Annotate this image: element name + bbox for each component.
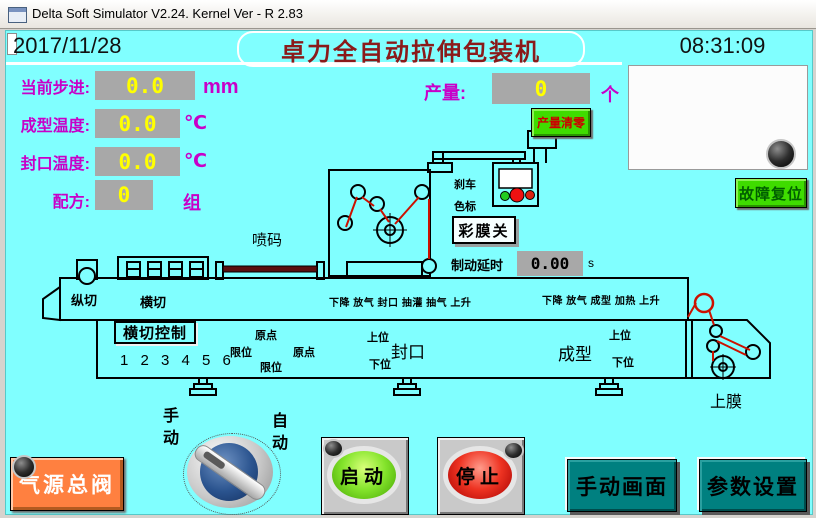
seal-temp-label: 封口温度: <box>8 150 90 174</box>
window-title: Delta Soft Simulator V2.24. Kernel Ver -… <box>32 6 303 21</box>
seal-sequence-label: 下降 放气 封口 抽灌 抽气 上升 <box>329 294 471 309</box>
alarm-ack-sphere-button[interactable] <box>766 139 796 169</box>
manual-auto-selector-knob[interactable] <box>183 433 281 515</box>
step-value: 0.0 <box>95 71 195 100</box>
step-label: 当前步进: <box>8 74 90 98</box>
air-valve-indicator <box>12 455 36 479</box>
forming-temp-unit: ℃ <box>184 112 207 135</box>
seal-temp-value: 0.0 <box>95 147 180 176</box>
form-lower-pos-label: 下位 <box>612 354 634 370</box>
start-indicator <box>323 439 344 458</box>
time-display: 08:31:09 <box>640 33 805 59</box>
recipe-label: 配方: <box>8 188 90 212</box>
seal-lower-pos-label: 下位 <box>369 356 391 372</box>
production-clear-button[interactable]: 产量清零 <box>531 108 591 137</box>
fault-reset-button[interactable]: 故障复位 <box>735 178 807 208</box>
origin-label-b: 原点 <box>293 344 315 360</box>
production-label: 产量: <box>424 79 466 105</box>
crosscut-control-button[interactable]: 横切控制 <box>114 321 196 344</box>
form-upper-pos-label: 上位 <box>609 327 631 343</box>
machine-title: 卓力全自动拉伸包装机 <box>237 31 585 67</box>
manual-label: 手动 <box>161 406 181 450</box>
auto-label: 自动 <box>270 411 290 455</box>
step-unit: mm <box>203 76 239 99</box>
manual-screen-button[interactable]: 手动画面 <box>567 459 677 512</box>
origin-label-a: 原点 <box>255 327 277 343</box>
date-display: 2017/11/28 <box>13 33 121 59</box>
color-film-toggle-button[interactable]: 彩膜关 <box>452 216 516 244</box>
inkjet-printer-label: 喷码 <box>252 229 282 250</box>
param-settings-button[interactable]: 参数设置 <box>699 459 807 512</box>
seal-upper-pos-label: 上位 <box>367 329 389 345</box>
form-sequence-label: 下降 放气 成型 加热 上升 <box>542 292 660 307</box>
brake-delay-unit: s <box>588 256 594 270</box>
brake-delay-label: 制动延时 <box>451 255 503 274</box>
seal-station-label: 封口 <box>391 338 425 363</box>
production-unit: 个 <box>601 81 619 107</box>
recipe-unit: 组 <box>183 189 201 215</box>
station-digits: 1 2 3 4 5 6 <box>120 352 235 369</box>
brake-label-line2: 色标 <box>454 198 476 214</box>
form-station-label: 成型 <box>558 340 592 365</box>
forming-temp-value: 0.0 <box>95 109 180 138</box>
simulator-window: Delta Soft Simulator V2.24. Kernel Ver -… <box>0 0 816 518</box>
stop-indicator <box>503 441 524 460</box>
crosscut-label: 横切 <box>140 292 166 311</box>
app-window-icon <box>8 7 27 23</box>
forming-temp-label: 成型温度: <box>8 112 90 136</box>
seal-temp-unit: ℃ <box>184 150 207 173</box>
brake-delay-value[interactable]: 0.00 <box>517 251 583 276</box>
limit-label-a: 限位 <box>230 344 252 360</box>
slitter-label: 纵切 <box>71 290 97 309</box>
limit-label-b: 限位 <box>260 359 282 375</box>
recipe-value[interactable]: 0 <box>95 180 153 210</box>
upper-film-label: 上膜 <box>710 388 742 412</box>
brake-label-line1: 刹车 <box>454 176 476 192</box>
production-value: 0 <box>492 73 590 104</box>
